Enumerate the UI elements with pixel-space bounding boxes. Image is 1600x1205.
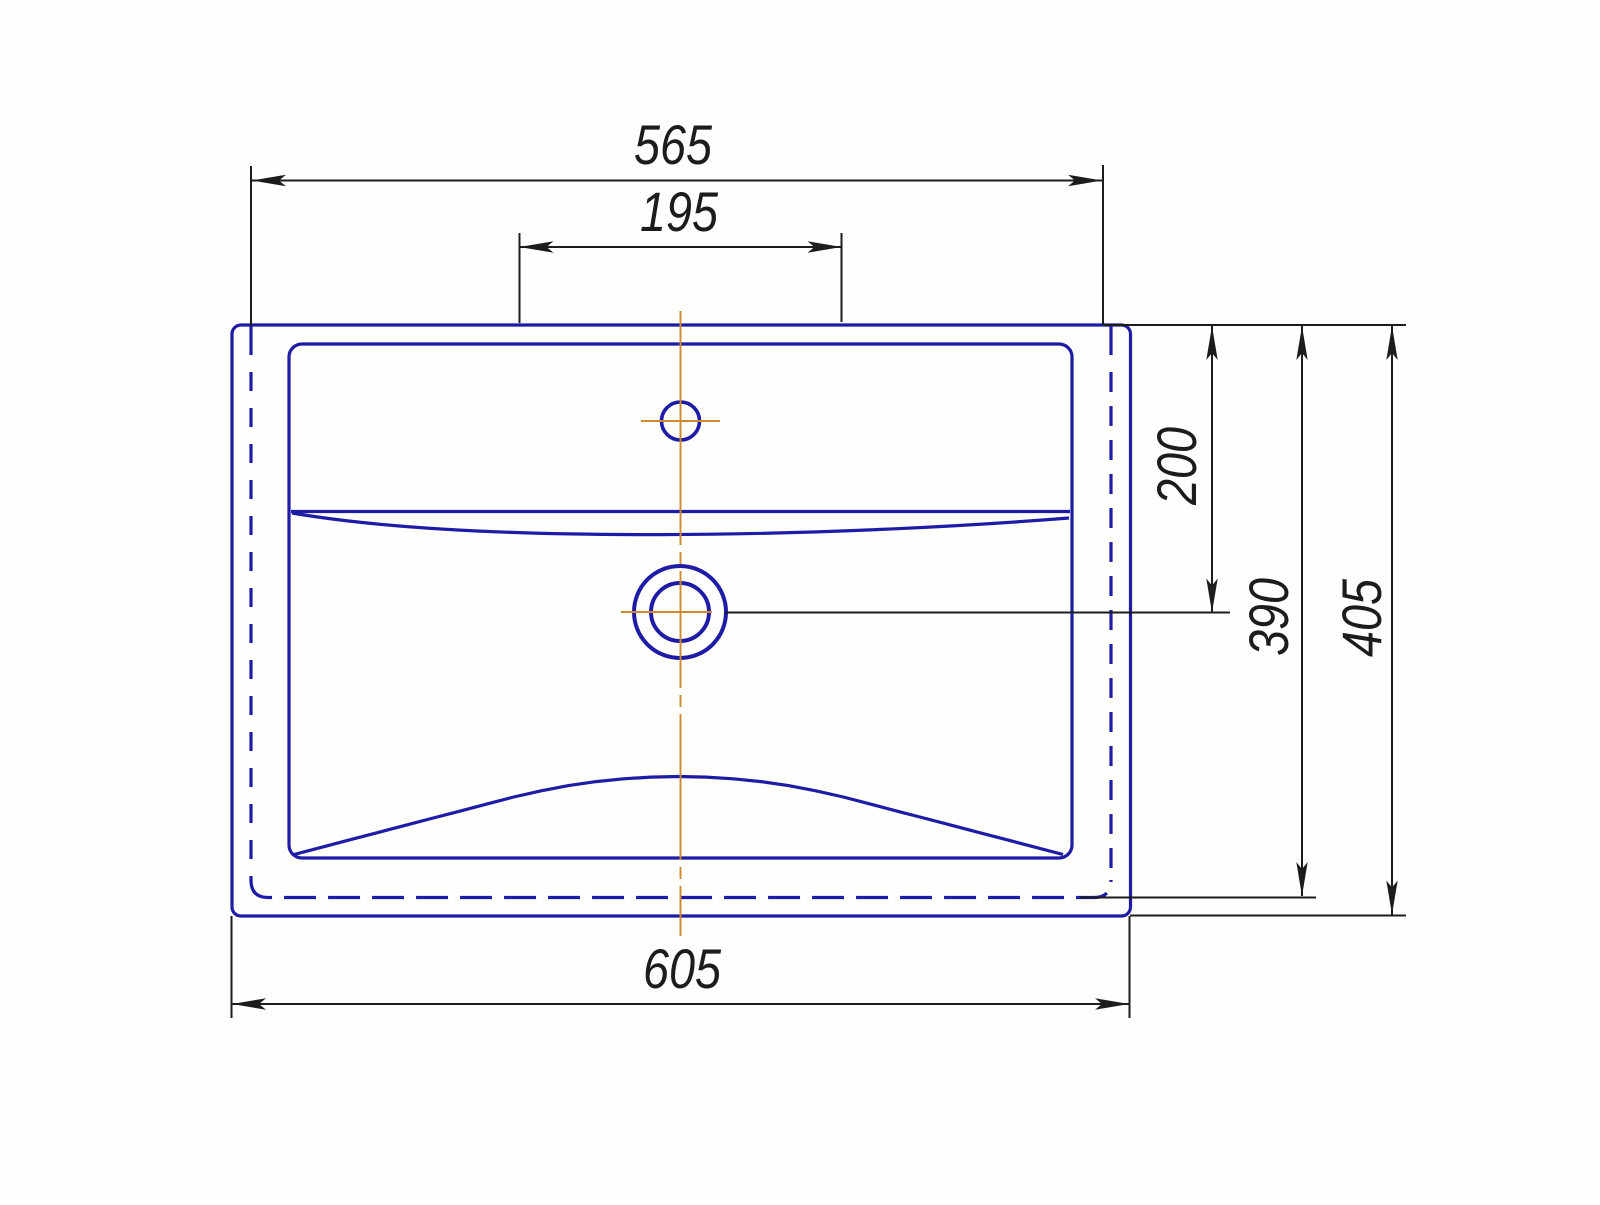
- svg-text:390: 390: [1237, 578, 1300, 656]
- svg-text:200: 200: [1145, 427, 1208, 506]
- svg-text:605: 605: [643, 937, 722, 1000]
- svg-text:195: 195: [640, 180, 719, 243]
- svg-text:565: 565: [634, 113, 713, 176]
- svg-text:405: 405: [1330, 578, 1393, 657]
